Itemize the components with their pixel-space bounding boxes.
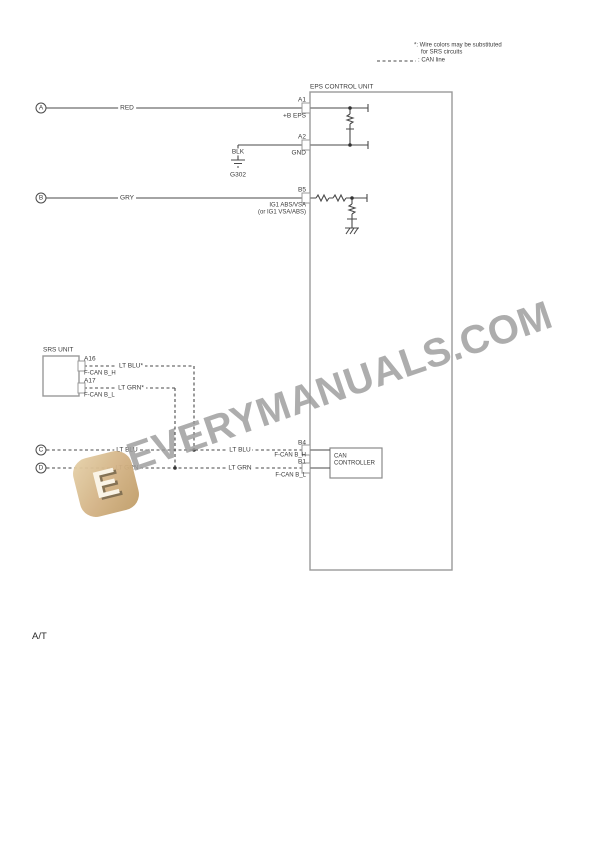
eps-internal-resistor-to-ground bbox=[347, 198, 357, 228]
eps-a1-internal-rail bbox=[310, 104, 368, 112]
pin-label-gnd: GND bbox=[292, 149, 306, 156]
eps-a2-internal-rail bbox=[310, 141, 368, 149]
eps-internal-suppressor bbox=[346, 108, 354, 145]
can-controller-stubs bbox=[310, 450, 330, 468]
wire-label-lt-grn-star: LT GRN* bbox=[116, 384, 146, 391]
pin-label-ig1-line1: IG1 ABS/VSA bbox=[269, 203, 306, 210]
pin-label-fcan-bl: F-CAN B_L bbox=[275, 473, 306, 480]
junction-dot bbox=[350, 196, 354, 200]
wire-label-lt-blu-star: LT BLU* bbox=[117, 362, 145, 369]
watermark-logo-letter: E bbox=[88, 460, 123, 508]
junction-dot bbox=[348, 106, 352, 110]
connector-d: D bbox=[36, 463, 47, 474]
wiring-diagram-page: *: Wire colors may be substituted for SR… bbox=[0, 0, 612, 866]
srs-pin-label-fcan-bl: F-CAN B_L bbox=[84, 393, 115, 400]
wiring-diagram-canvas bbox=[0, 0, 612, 866]
terminal-tab-b5 bbox=[302, 193, 310, 203]
pin-label-ig1-line2: (or IG1 VSA/ABS) bbox=[258, 210, 306, 217]
srs-pin-label-fcan-bh: F-CAN B_H bbox=[84, 371, 116, 378]
terminal-label-a1: A1 bbox=[298, 96, 306, 103]
wire-label-blk: BLK bbox=[230, 148, 246, 155]
connector-a: A bbox=[36, 103, 47, 114]
legend-note-line1: *: Wire colors may be substituted bbox=[414, 43, 502, 50]
ground-label-g302: G302 bbox=[230, 171, 246, 178]
junction-dot bbox=[348, 143, 352, 147]
terminal-label-a16: A16 bbox=[84, 355, 96, 362]
terminal-label-b1: B1 bbox=[298, 458, 306, 465]
wire-label-gry: GRY bbox=[118, 194, 136, 201]
legend-note-line2: for SRS circuits bbox=[421, 50, 462, 57]
eps-b5-internal-resistors bbox=[310, 194, 367, 202]
wire-label-red: RED bbox=[118, 104, 136, 111]
srs-unit-box bbox=[43, 356, 79, 396]
ground-symbol-g302 bbox=[231, 160, 245, 167]
eps-control-unit-title: EPS CONTROL UNIT bbox=[310, 83, 373, 90]
pin-label-b-eps: +B EPS bbox=[283, 112, 306, 119]
can-controller-label-line2: CONTROLLER bbox=[334, 461, 375, 468]
terminal-label-b5: B5 bbox=[298, 186, 306, 193]
connector-b: B bbox=[36, 193, 47, 204]
connector-c: C bbox=[36, 445, 47, 456]
terminal-label-a2: A2 bbox=[298, 133, 306, 140]
terminal-label-b4: B4 bbox=[298, 439, 306, 446]
legend-can-line-label: : CAN line bbox=[418, 58, 445, 65]
transmission-type-label: A/T bbox=[32, 631, 47, 642]
chassis-ground-symbol bbox=[345, 228, 359, 234]
terminal-label-a17: A17 bbox=[84, 377, 96, 384]
srs-unit-title: SRS UNIT bbox=[43, 346, 73, 353]
wire-label-lt-grn-2: LT GRN bbox=[226, 464, 253, 471]
can-controller-label-line1: CAN bbox=[334, 454, 347, 461]
